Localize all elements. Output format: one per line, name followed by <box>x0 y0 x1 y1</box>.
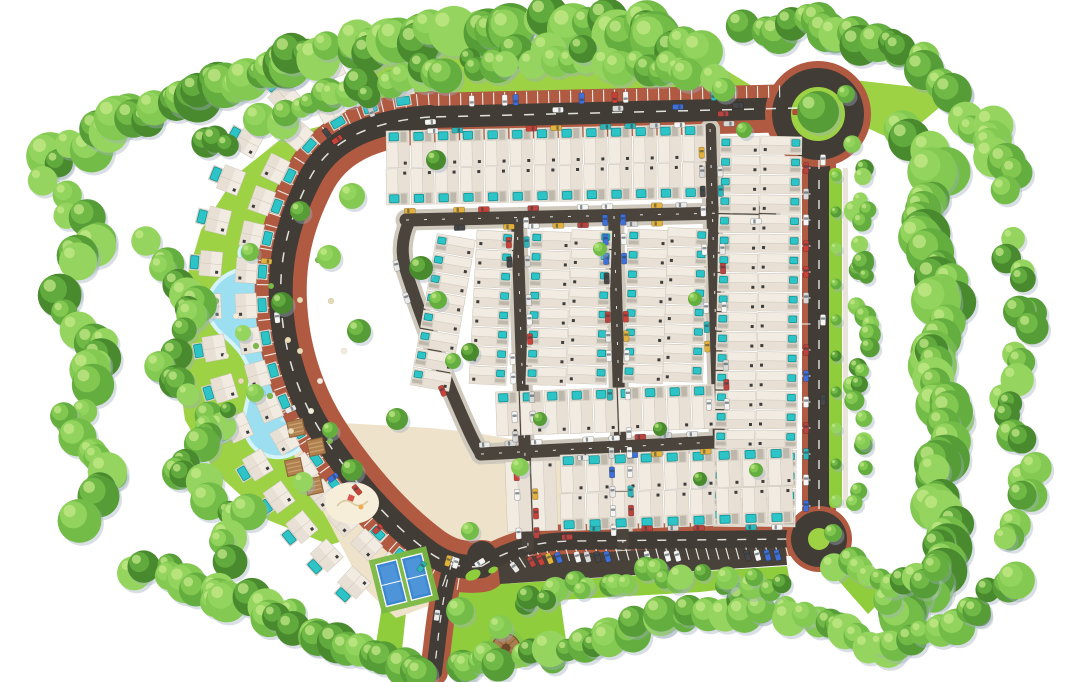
park-umbrella <box>267 393 273 399</box>
car-windshield <box>697 526 699 530</box>
rooftop-unit <box>502 170 505 173</box>
tree-glint <box>858 162 863 167</box>
driveway <box>784 512 790 522</box>
tree-glint <box>657 572 662 577</box>
car-body <box>651 203 662 209</box>
car <box>612 92 618 103</box>
rooftop-unit <box>636 425 639 428</box>
tree-glint <box>595 244 599 248</box>
tree-glint <box>847 393 853 399</box>
park-umbrella <box>308 408 314 414</box>
tree-glint <box>237 327 241 331</box>
car-windshield <box>723 112 725 116</box>
tree-glint <box>730 14 739 23</box>
car-body <box>610 486 616 497</box>
tree-glint <box>348 638 357 647</box>
tree-glint <box>463 524 468 529</box>
tree-glint <box>344 462 350 468</box>
car <box>605 312 611 323</box>
tree-glint <box>715 81 722 88</box>
rooftop-unit <box>749 443 752 446</box>
pool <box>719 451 729 459</box>
tree-glint <box>57 206 64 213</box>
pool <box>790 218 798 225</box>
car <box>652 221 663 227</box>
tree-glint <box>64 247 75 258</box>
tree-glint <box>132 555 141 564</box>
car <box>525 256 531 267</box>
tree-glint <box>659 54 668 63</box>
car <box>724 379 730 390</box>
car <box>479 442 490 448</box>
car-body <box>503 224 514 230</box>
rooftop-unit <box>659 320 662 323</box>
car <box>527 314 533 325</box>
car-windshield <box>556 126 558 130</box>
rooftop-unit <box>573 280 576 283</box>
tree-glint <box>596 52 605 61</box>
tree-glint <box>567 574 573 580</box>
car-windshield <box>655 123 657 127</box>
rooftop-unit <box>708 492 711 495</box>
pool <box>668 517 678 525</box>
pool <box>788 375 796 382</box>
tree-glint <box>904 222 916 234</box>
tree-glint <box>927 534 936 543</box>
pool <box>562 129 572 137</box>
car <box>607 389 613 400</box>
pool <box>533 234 541 241</box>
car-windshield <box>618 106 620 110</box>
car <box>609 447 615 458</box>
pool <box>497 351 505 358</box>
pool <box>587 129 597 137</box>
car <box>507 256 513 267</box>
car-windshield <box>671 526 673 530</box>
car-body <box>534 527 540 538</box>
car-body <box>478 206 489 212</box>
pool <box>258 298 267 311</box>
tree-glint <box>929 619 938 628</box>
rooftop-unit <box>467 251 470 254</box>
tree-glint <box>857 309 863 315</box>
rooftop-unit <box>587 427 590 430</box>
pool <box>538 192 548 200</box>
driveway <box>500 282 510 286</box>
pool <box>720 217 728 224</box>
car-windshield <box>593 527 595 531</box>
tree-glint <box>65 317 76 328</box>
play-structure <box>359 505 364 510</box>
driveway <box>583 390 589 400</box>
car <box>524 236 530 247</box>
rooftop-unit <box>475 319 478 322</box>
pool <box>694 516 704 524</box>
park-umbrella <box>341 348 347 354</box>
rooftop-unit <box>760 490 763 493</box>
tree-glint <box>873 571 879 577</box>
pool <box>499 394 509 402</box>
driveway <box>718 324 728 328</box>
tree-glint <box>853 238 858 243</box>
car <box>649 123 660 129</box>
tree-glint <box>655 424 659 428</box>
driveway <box>549 190 555 200</box>
driveway <box>559 391 565 401</box>
car <box>452 128 463 134</box>
car-windshield <box>626 392 630 394</box>
car-windshield <box>606 315 610 317</box>
tree-glint <box>243 245 248 250</box>
tree-glint <box>174 282 184 292</box>
rooftop-unit <box>750 364 753 367</box>
driveway <box>679 452 685 462</box>
tree-glint <box>850 300 855 305</box>
pool <box>667 453 677 461</box>
pool <box>661 189 671 197</box>
tree-glint <box>119 104 130 115</box>
car <box>625 389 631 400</box>
tree-glint <box>704 68 712 76</box>
car <box>534 527 540 538</box>
car-windshield <box>804 243 808 245</box>
car-windshield <box>654 221 656 225</box>
car-body <box>642 526 653 532</box>
tree-glint <box>572 632 582 642</box>
car-windshield <box>533 491 537 493</box>
tree-glint <box>431 293 436 298</box>
rooftop-unit <box>403 172 406 175</box>
car-body <box>626 427 632 438</box>
tree-glint <box>74 204 84 214</box>
car-body <box>602 204 613 210</box>
rooftop-unit <box>612 426 615 429</box>
tree-glint <box>629 53 637 61</box>
tree-glint <box>324 86 330 92</box>
car-body <box>524 236 530 247</box>
tree-glint <box>979 581 986 588</box>
tree-glint <box>148 355 157 364</box>
driveway <box>673 188 679 198</box>
car <box>609 435 620 441</box>
rooftop-unit <box>564 244 567 247</box>
driveway <box>510 392 516 402</box>
car-windshield <box>511 376 515 378</box>
tree-glint <box>855 215 860 220</box>
tree-glint <box>95 332 103 340</box>
rooftop-unit <box>787 479 790 482</box>
car-windshield <box>534 511 538 513</box>
pool <box>719 276 727 283</box>
rooftop-unit <box>710 422 713 425</box>
car-windshield <box>525 259 529 261</box>
car <box>610 486 616 497</box>
pool <box>661 127 671 135</box>
tree-glint <box>208 69 221 82</box>
car-windshield <box>507 259 511 261</box>
pool <box>685 127 695 135</box>
car <box>628 486 634 497</box>
rooftop-unit <box>562 302 565 305</box>
rooftop-unit <box>563 283 566 286</box>
car-windshield <box>624 314 628 316</box>
car-body <box>803 267 808 278</box>
pool <box>636 128 646 136</box>
rooftop-unit <box>760 364 763 367</box>
tree-glint <box>412 259 419 266</box>
pool <box>719 315 727 322</box>
driveway <box>732 514 738 524</box>
car <box>720 263 726 274</box>
tree-glint <box>832 618 842 628</box>
car-body <box>577 204 588 210</box>
tree-glint <box>847 203 853 209</box>
tree-glint <box>324 424 328 428</box>
tree-glint <box>857 365 861 369</box>
car-windshield <box>534 440 537 444</box>
tree-glint <box>1007 300 1016 309</box>
rooftop-unit <box>759 403 762 406</box>
car-body <box>720 263 726 274</box>
car-body <box>506 237 512 248</box>
tree-glint <box>608 577 614 583</box>
car <box>732 103 743 109</box>
car-windshield <box>821 397 825 399</box>
tree-glint <box>842 551 850 559</box>
tree-glint <box>953 106 963 116</box>
car <box>503 224 514 230</box>
car <box>820 315 825 326</box>
rooftop-unit <box>763 187 766 190</box>
rooftop-unit <box>752 247 755 250</box>
car-windshield <box>821 157 825 159</box>
tree-glint <box>900 629 909 638</box>
driveway <box>628 517 634 527</box>
car <box>687 431 698 437</box>
rooftop-unit <box>761 324 764 327</box>
car-windshield <box>804 425 808 427</box>
driveway <box>697 125 703 135</box>
driveway <box>496 359 506 363</box>
car <box>623 331 629 342</box>
tree-glint <box>937 78 948 89</box>
tree-glint <box>795 605 802 612</box>
rooftop-unit <box>683 483 686 486</box>
car-body <box>527 314 533 325</box>
car <box>533 508 539 519</box>
car <box>528 205 539 211</box>
tree-glint <box>1006 345 1013 352</box>
tree-glint <box>159 565 167 573</box>
park-umbrella <box>288 428 294 434</box>
car-body <box>425 119 436 125</box>
tree-glint <box>1011 485 1019 493</box>
car <box>627 466 633 477</box>
tree-glint <box>992 148 1003 159</box>
car-body <box>803 215 808 226</box>
rooftop-unit <box>661 261 664 264</box>
pool <box>390 195 400 203</box>
tree-glint <box>883 577 890 584</box>
tree-glint <box>294 100 300 106</box>
driveway <box>692 376 702 380</box>
tree-glint <box>83 481 95 493</box>
driveway <box>716 442 726 446</box>
rooftop-unit <box>570 377 573 380</box>
rooftop-unit <box>735 481 738 484</box>
car-windshield <box>628 469 632 471</box>
driveway <box>789 227 799 231</box>
rooftop-unit <box>753 188 756 191</box>
tree-glint <box>610 20 621 31</box>
car-body <box>628 505 634 516</box>
car-body <box>803 423 808 434</box>
car-windshield <box>722 305 726 307</box>
rooftop-unit <box>753 168 756 171</box>
tree-glint <box>141 95 151 105</box>
pool <box>499 312 507 319</box>
car-windshield <box>481 207 483 211</box>
car-windshield <box>621 236 625 238</box>
car <box>803 423 808 434</box>
rooftop-unit <box>561 341 564 344</box>
pool <box>641 454 651 462</box>
tree-glint <box>57 185 65 193</box>
rooftop-unit <box>574 261 577 264</box>
car-windshield <box>512 415 516 417</box>
car-windshield <box>407 209 409 213</box>
pool <box>513 192 523 200</box>
car-body <box>803 163 808 174</box>
tree-glint <box>545 50 554 59</box>
car-windshield <box>705 344 709 346</box>
pool <box>531 273 539 280</box>
tree-glint <box>923 458 932 467</box>
car <box>706 399 712 410</box>
driveway <box>648 188 654 198</box>
rooftop-unit <box>242 240 246 244</box>
tree-glint <box>857 437 861 441</box>
tree-glint <box>391 653 402 664</box>
house-row <box>526 231 571 386</box>
tree-glint <box>232 64 244 76</box>
car-body <box>635 434 646 440</box>
tree-glint <box>520 589 527 596</box>
tree-glint <box>864 318 869 323</box>
tree-glint <box>979 143 990 154</box>
car-windshield <box>508 441 511 445</box>
tree-glint <box>765 20 776 31</box>
driveway <box>696 240 706 244</box>
rooftop-unit <box>671 240 674 243</box>
rooftop-unit <box>763 207 766 210</box>
tree-glint <box>217 549 227 559</box>
car-windshield <box>679 203 681 207</box>
tree-glint <box>93 457 104 468</box>
car-windshield <box>707 402 711 404</box>
tree-glint <box>832 352 835 355</box>
car-windshield <box>719 188 723 190</box>
car-body <box>533 508 539 519</box>
tree-glint <box>852 485 857 490</box>
pool <box>670 388 680 396</box>
car-body <box>516 528 522 539</box>
tree-glint <box>173 464 181 472</box>
pool <box>790 238 798 245</box>
car <box>606 350 612 361</box>
rooftop-unit <box>762 226 765 229</box>
car <box>803 371 808 382</box>
tree-glint <box>916 136 927 147</box>
car-body <box>611 525 617 536</box>
tree-glint <box>894 571 902 579</box>
car-body <box>610 506 616 517</box>
car-body <box>672 104 683 110</box>
car-windshield <box>457 208 459 212</box>
tree-glint <box>856 170 861 175</box>
rooftop-unit <box>709 482 712 485</box>
car-body <box>820 155 825 166</box>
car-windshield <box>621 217 625 219</box>
pool <box>598 331 606 338</box>
car <box>750 218 761 224</box>
driveway <box>721 148 731 152</box>
driveway <box>719 226 729 230</box>
car-body <box>699 147 705 158</box>
car-windshield <box>700 169 704 171</box>
tree-glint <box>535 37 545 47</box>
car <box>469 95 475 106</box>
tree-glint <box>820 613 828 621</box>
car-body <box>577 222 588 228</box>
car-windshield <box>725 402 729 404</box>
car <box>803 241 808 252</box>
car-windshield <box>645 526 647 530</box>
tree-glint <box>824 557 832 565</box>
car-body <box>552 107 563 113</box>
tree-glint <box>995 179 1003 187</box>
car <box>723 360 729 371</box>
rooftop-unit <box>659 300 662 303</box>
car <box>674 122 685 128</box>
car <box>583 437 594 443</box>
rooftop-unit <box>479 242 482 245</box>
tree-glint <box>713 603 722 612</box>
car-windshield <box>470 101 474 103</box>
pool <box>528 370 536 377</box>
pool <box>500 293 508 300</box>
car-windshield <box>605 204 607 208</box>
driveway <box>787 364 797 368</box>
pool <box>464 193 474 201</box>
pool <box>694 329 702 336</box>
tree-glint <box>198 418 204 424</box>
pool <box>720 237 728 244</box>
car-windshield <box>654 203 656 207</box>
rooftop-unit <box>215 271 218 274</box>
car <box>612 106 623 112</box>
tree-glint <box>775 577 780 582</box>
tree-glint <box>918 283 932 297</box>
car-windshield <box>654 452 657 456</box>
tree-glint <box>343 187 350 194</box>
car <box>803 501 808 512</box>
pool <box>771 449 781 457</box>
car <box>604 273 610 284</box>
driveway <box>790 168 800 172</box>
car <box>746 525 757 531</box>
tree-glint <box>360 88 367 95</box>
